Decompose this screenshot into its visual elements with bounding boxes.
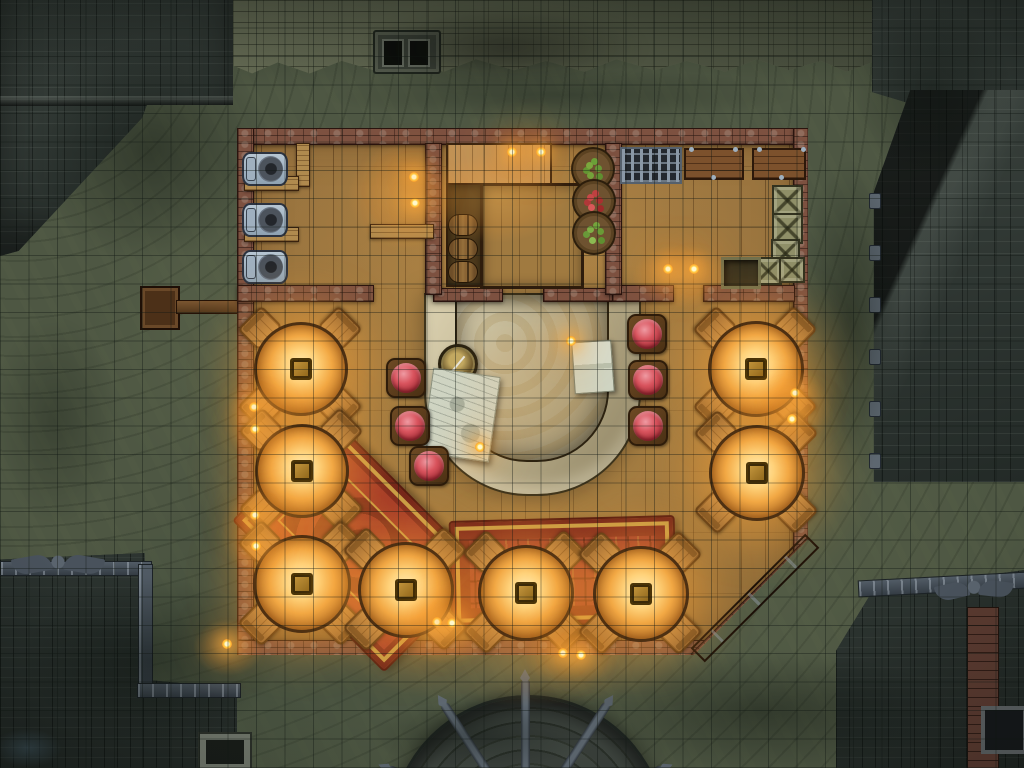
candle-flame [536, 147, 546, 157]
work-table [684, 148, 744, 180]
candle-flame [475, 442, 485, 452]
round-table [478, 545, 574, 641]
round-table [255, 424, 349, 518]
toilet [242, 250, 288, 284]
candle-flame [566, 336, 576, 346]
furniture-layer [0, 0, 1024, 768]
produce-barrel-cabbage [574, 213, 614, 253]
candle-flame [222, 639, 232, 649]
candle-flame [558, 648, 568, 658]
toilet [242, 152, 288, 186]
round-table [709, 425, 805, 521]
candle-flame [790, 388, 800, 398]
candle-flame [663, 264, 673, 274]
work-table [752, 148, 806, 180]
round-table [253, 535, 351, 633]
battle-map-canvas[interactable] [0, 0, 1024, 768]
diagonal-bench [691, 534, 820, 663]
candle-flame [576, 650, 586, 660]
kitchen-platform [480, 183, 584, 289]
round-table [254, 322, 348, 416]
bar-stool [627, 314, 667, 354]
bar-stool [628, 406, 668, 446]
bar-stool [386, 358, 426, 398]
ledger-papers [571, 340, 615, 395]
candle-flame [432, 617, 442, 627]
candle-flame [787, 414, 797, 424]
toilet [242, 203, 288, 237]
round-table [593, 546, 689, 642]
wooden-partition [370, 224, 434, 239]
round-table [708, 321, 804, 417]
candle-flame [250, 510, 260, 520]
bar-stool [409, 446, 449, 486]
candle-flame [507, 147, 517, 157]
barrel [448, 238, 478, 260]
candle-flame [689, 264, 699, 274]
metal-rack [620, 147, 682, 184]
candle-flame [250, 424, 260, 434]
bar-stool [628, 360, 668, 400]
interior-brick-wall [433, 288, 503, 302]
interior-brick-wall [543, 288, 613, 302]
candle-flame [410, 198, 420, 208]
bar-stool [390, 406, 430, 446]
candle-flame [249, 402, 259, 412]
candle-flame [251, 541, 261, 551]
open-crate [721, 257, 761, 289]
barrel [448, 261, 478, 283]
interior-brick-wall [425, 143, 442, 295]
candle-flame [409, 172, 419, 182]
crate [779, 257, 805, 283]
barrel [448, 214, 478, 236]
interior-brick-wall [237, 285, 374, 302]
candle-flame [447, 618, 457, 628]
crate [772, 185, 803, 216]
